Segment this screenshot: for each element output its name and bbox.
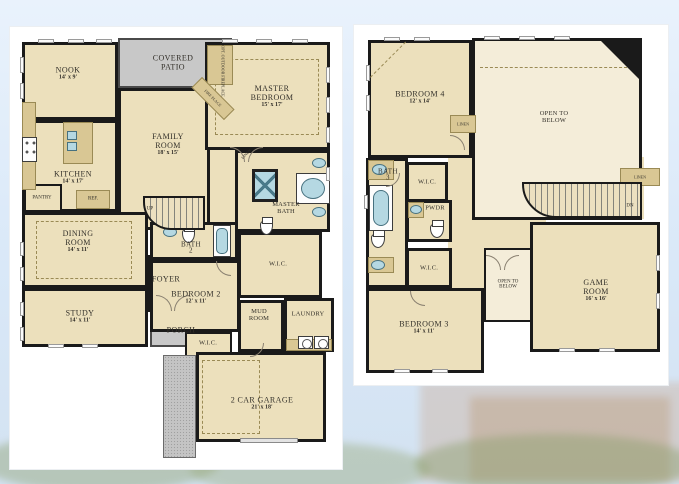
sink-icon xyxy=(371,260,385,270)
window-marker xyxy=(82,344,98,348)
label-study: STUDY14' x 11' xyxy=(66,309,95,324)
label-linen-hall: LINEN xyxy=(457,122,469,127)
sink-icon xyxy=(312,207,326,217)
label-mud-room: MUD ROOM xyxy=(243,308,275,322)
window-marker xyxy=(68,39,84,43)
dryer-icon xyxy=(314,336,329,349)
window-marker xyxy=(20,327,24,341)
window-marker xyxy=(364,195,368,209)
label-open-to-below-main: OPEN TO BELOW xyxy=(536,110,572,124)
label-kitchen: KITCHEN14' x 17' xyxy=(54,170,92,185)
window-marker xyxy=(96,39,112,43)
first-floor-plan-image[interactable]: NOOK14' x 9' COVERED PATIO OPT. OUTDOOR … xyxy=(10,27,342,469)
label-bedroom4: BEDROOM 412' x 14' xyxy=(395,90,445,105)
window-marker xyxy=(20,242,24,256)
window-marker xyxy=(366,65,370,81)
window-marker xyxy=(326,167,330,181)
window-marker xyxy=(394,369,410,373)
window-marker xyxy=(366,95,370,111)
second-floor-plan-image[interactable]: BEDROOM 412' x 14' OPEN TO BELOW LINEN B… xyxy=(354,25,668,385)
washer-icon xyxy=(298,336,313,349)
window-marker xyxy=(326,127,330,143)
label-covered-patio: COVERED PATIO xyxy=(141,54,205,71)
label-dining-room: DINING ROOM14' x 11' xyxy=(50,230,106,254)
window-marker xyxy=(256,39,272,43)
listing-floorplan-screenshot: { "colors": { "background_sky": "#dce9f8… xyxy=(0,0,679,484)
window-marker xyxy=(20,302,24,316)
window-marker xyxy=(326,97,330,113)
window-marker xyxy=(384,37,400,41)
label-pwdr: PWDR xyxy=(425,205,445,212)
sink-icon xyxy=(67,142,77,151)
label-foyer: FOYER xyxy=(152,275,180,284)
sink-icon xyxy=(410,205,422,214)
sink-icon xyxy=(67,131,77,140)
label-bath2: BATH 2 xyxy=(181,242,201,255)
window-marker xyxy=(599,348,615,352)
stove-icon xyxy=(22,137,37,162)
window-marker xyxy=(48,344,64,348)
label-master-wic: W.I.C. xyxy=(269,261,287,268)
stairs-down xyxy=(522,182,642,218)
window-marker xyxy=(20,57,24,73)
shower-icon xyxy=(252,169,278,202)
window-marker xyxy=(222,39,238,43)
window-marker xyxy=(292,39,308,43)
bathtub-water xyxy=(301,178,325,199)
window-marker xyxy=(519,36,535,40)
bathtub-water xyxy=(373,190,389,226)
label-family-room: FAMILY ROOM18' x 15' xyxy=(141,133,195,157)
window-marker xyxy=(20,83,24,99)
label-laundry: LAUNDRY xyxy=(292,311,325,318)
label-stairs-down: DN xyxy=(626,204,633,209)
window-marker xyxy=(432,369,448,373)
driveway xyxy=(163,355,196,458)
label-stairs-up: UP xyxy=(147,207,153,212)
label-open-to-below-small: OPEN TO BELOW xyxy=(495,280,521,291)
label-porch: PORCH xyxy=(167,326,196,335)
label-wic-bedroom4: W.I.C. xyxy=(418,179,436,186)
window-marker xyxy=(326,67,330,83)
label-linen-stairs: LINEN xyxy=(634,175,646,180)
label-master-bath: MASTER BATH xyxy=(266,201,306,215)
corner-wall xyxy=(600,40,640,80)
bathtub-water xyxy=(216,228,228,254)
label-wic-bedroom2: W.I.C. xyxy=(199,340,217,347)
window-marker xyxy=(20,267,24,281)
label-master-bedroom: MASTER BEDROOM15' x 17' xyxy=(237,85,307,109)
room-nook xyxy=(22,42,118,120)
window-marker xyxy=(656,255,660,271)
label-bedroom3: BEDROOM 314' x 11' xyxy=(399,320,449,335)
label-ref: REF. xyxy=(88,197,98,202)
label-opt-outdoor-fireplace: OPT. OUTDOOR FIREPLACE xyxy=(221,45,226,96)
label-bath3: BATH 3 xyxy=(378,169,398,182)
window-marker xyxy=(554,36,570,40)
label-nook: NOOK14' x 9' xyxy=(56,66,81,81)
label-bedroom2: BEDROOM 212' x 11' xyxy=(171,290,221,305)
label-pantry: PANTRY xyxy=(32,196,51,201)
label-game-room: GAME ROOM16' x 16' xyxy=(573,279,619,303)
window-marker xyxy=(38,39,54,43)
label-wic-bedroom3: W.I.C. xyxy=(420,265,438,272)
label-garage: 2 CAR GARAGE21' x 18' xyxy=(231,396,294,411)
window-marker xyxy=(656,293,660,309)
sink-icon xyxy=(312,158,326,168)
window-marker xyxy=(484,36,500,40)
window-marker xyxy=(559,348,575,352)
window-marker xyxy=(414,37,430,41)
garage-door xyxy=(240,438,298,443)
